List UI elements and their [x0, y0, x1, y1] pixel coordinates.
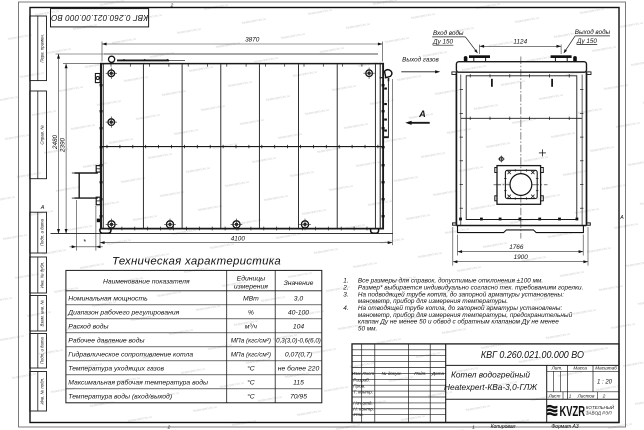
svg-text:манометр, прибор для измерения: манометр, прибор для измерения температу… — [358, 311, 573, 319]
svg-text:Копировал: Копировал — [491, 424, 516, 430]
svg-text:40-100: 40-100 — [288, 309, 309, 316]
svg-text:*: * — [83, 239, 86, 246]
svg-text:Разраб.: Разраб. — [353, 378, 370, 383]
svg-text:Выход газов: Выход газов — [402, 55, 439, 63]
svg-text:115: 115 — [293, 379, 304, 386]
svg-text:Листов: Листов — [577, 393, 595, 398]
svg-text:50 мм.: 50 мм. — [358, 326, 377, 333]
svg-text:Максимальная рабочая температу: Максимальная рабочая температура воды — [68, 378, 208, 386]
svg-text:Единицы: Единицы — [237, 275, 265, 283]
svg-text:Техническая характеристика: Техническая характеристика — [112, 256, 281, 268]
svg-text:Значение: Значение — [284, 280, 314, 287]
svg-text:Heatexpert-КВа-3,0-ГЛЖ: Heatexpert-КВа-3,0-ГЛЖ — [444, 382, 538, 392]
svg-text:Т. контр.: Т. контр. — [353, 389, 373, 394]
svg-text:измерения: измерения — [234, 283, 268, 290]
svg-text:манометр, прибор для измерения: манометр, прибор для измерения температу… — [358, 297, 508, 305]
svg-text:На отводящей трубе котла, до з: На отводящей трубе котла, до запорной ар… — [358, 304, 563, 312]
svg-text:Взам. инв. №: Взам. инв. № — [40, 300, 45, 327]
svg-text:Номинальная мощность: Номинальная мощность — [68, 295, 148, 302]
svg-text:Подп. и дата: Подп. и дата — [40, 219, 45, 247]
svg-text:Пров.: Пров. — [353, 384, 365, 389]
svg-text:3.: 3. — [343, 291, 348, 298]
svg-text:№ докум.: № докум. — [382, 371, 402, 376]
svg-text:Н. контр.: Н. контр. — [353, 406, 374, 411]
svg-text:Лист: Лист — [548, 393, 561, 398]
svg-text:Ду 150: Ду 150 — [432, 39, 453, 46]
svg-text:Перв. примен.: Перв. примен. — [40, 34, 45, 63]
svg-text:КВГ 0.260.021.00.000 ВО: КВГ 0.260.021.00.000 ВО — [481, 350, 584, 361]
svg-text:Котел водогрейный: Котел водогрейный — [451, 370, 530, 380]
svg-text:°С: °С — [247, 364, 255, 372]
svg-text:2: 2 — [170, 3, 174, 9]
svg-text:Лит.: Лит. — [551, 366, 563, 371]
svg-text:2480: 2480 — [52, 134, 59, 150]
svg-text:Размер* выбирается индивидуаль: Размер* выбирается индивидуально согласн… — [358, 284, 584, 292]
svg-text:Все размеры для справок, допус: Все размеры для справок, допустимые откл… — [358, 277, 543, 285]
svg-text:клапан Ду не менее 50 и обвод: клапан Ду не менее 50 и обвод с обратным… — [358, 318, 559, 326]
svg-text:Инв. № подл.: Инв. № подл. — [40, 378, 45, 405]
svg-text:°С: °С — [247, 392, 255, 400]
svg-text:Утв.: Утв. — [353, 412, 363, 417]
svg-text:2390: 2390 — [59, 137, 66, 153]
svg-text:Выход воды: Выход воды — [575, 28, 611, 36]
svg-text:не более 220: не более 220 — [278, 364, 320, 372]
svg-text:Гидравлическое сопротивление к: Гидравлическое сопротивление котла — [68, 350, 193, 358]
svg-text:1 : 20: 1 : 20 — [597, 379, 613, 385]
svg-text:А: А — [418, 109, 426, 119]
svg-text:Подп.: Подп. — [414, 371, 426, 376]
svg-text:Масса: Масса — [573, 366, 587, 371]
svg-text:Нач.отд.: Нач.отд. — [353, 400, 372, 405]
svg-text:2: 2 — [167, 425, 171, 430]
svg-text:1900: 1900 — [514, 254, 529, 261]
svg-text:4.: 4. — [343, 305, 348, 312]
svg-text:70/95: 70/95 — [290, 393, 307, 400]
svg-text:Изм.: Изм. — [352, 371, 362, 376]
svg-text:м³/ч: м³/ч — [245, 323, 258, 330]
svg-text:Формат А3: Формат А3 — [551, 424, 579, 430]
svg-text:На подводящей трубе котла, до: На подводящей трубе котла, до запорной а… — [358, 290, 564, 298]
svg-text:4100: 4100 — [231, 236, 246, 243]
svg-text:°С: °С — [247, 378, 255, 386]
svg-text:Масштаб: Масштаб — [595, 366, 617, 371]
svg-text:Вход воды: Вход воды — [433, 29, 464, 37]
svg-text:Диапазон рабочего регулировани: Диапазон рабочего регулирования — [67, 308, 179, 316]
svg-text:0,07(0,7): 0,07(0,7) — [285, 351, 312, 358]
svg-text:А: А — [619, 215, 624, 221]
svg-text:Дата: Дата — [431, 371, 445, 376]
svg-text:Температура воды (вход/выход): Температура воды (вход/выход) — [68, 392, 172, 400]
svg-text:KVZR: KVZR — [560, 404, 586, 420]
svg-text:2: 2 — [602, 393, 606, 398]
svg-text:Лист: Лист — [361, 371, 374, 376]
svg-text:Инв. № дубл.: Инв. № дубл. — [40, 262, 45, 288]
svg-text:А: А — [40, 205, 45, 211]
svg-text:Рабочее давление воды: Рабочее давление воды — [68, 336, 144, 344]
svg-text:ЗАВОД РЭП: ЗАВОД РЭП — [586, 410, 613, 415]
svg-text:3870: 3870 — [245, 36, 260, 43]
svg-text:1: 1 — [569, 393, 572, 398]
svg-text:МПа (кгс/см²): МПа (кгс/см²) — [231, 351, 271, 358]
svg-text:1766: 1766 — [509, 244, 524, 251]
svg-text:КОТЕЛЬНЫЙ: КОТЕЛЬНЫЙ — [586, 403, 615, 410]
svg-text:КВГ 0.260.021.00.000 ВО: КВГ 0.260.021.00.000 ВО — [51, 13, 148, 22]
svg-text:МВт: МВт — [243, 295, 259, 302]
svg-text:3,0: 3,0 — [294, 295, 304, 302]
svg-text:Температура уходящих газов: Температура уходящих газов — [68, 364, 164, 372]
svg-text:%: % — [248, 309, 254, 316]
svg-text:Подп. и дата: Подп. и дата — [40, 337, 45, 365]
svg-text:0,3(3,0)-0,6(6,0): 0,3(3,0)-0,6(6,0) — [276, 337, 321, 344]
svg-text:104: 104 — [293, 323, 305, 330]
svg-text:Ду 150: Ду 150 — [576, 38, 597, 45]
svg-text:Справ. №: Справ. № — [40, 125, 45, 145]
svg-text:Наименование показателя: Наименование показателя — [103, 278, 190, 285]
svg-text:Расход воды: Расход воды — [68, 322, 108, 330]
svg-text:1124: 1124 — [513, 38, 527, 45]
svg-text:1: 1 — [472, 425, 475, 430]
svg-text:МПа (кгс/см²): МПа (кгс/см²) — [231, 337, 271, 344]
